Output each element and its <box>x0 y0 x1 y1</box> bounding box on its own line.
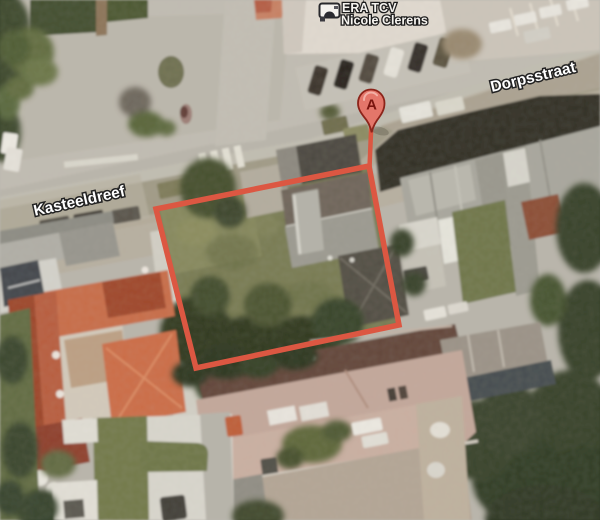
svg-text:Nicole Clerens: Nicole Clerens <box>341 14 428 28</box>
svg-text:A: A <box>366 97 377 114</box>
